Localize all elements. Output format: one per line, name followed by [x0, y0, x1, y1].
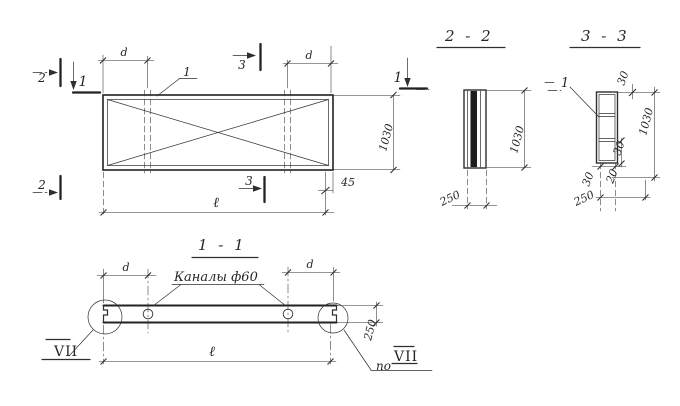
cut-label-2-bottom: 2 [37, 178, 46, 192]
engineering-drawing: 2 2 3 3 1 1 1 d d 1030 ℓ 45 2 - 2 1030 2… [0, 0, 680, 406]
channels-label: Каналы ф60 [173, 270, 258, 285]
section-2-2-view: 2 - 2 1030 250 [416, 27, 561, 209]
section-3-3-dim-width: 250 [571, 188, 596, 209]
detail-right-label: VII [393, 349, 418, 365]
cut-label-1-left: 1 [79, 74, 88, 90]
section-3-3-dim-rung: 30 [611, 139, 628, 157]
section-3-3-dim-bottom-right: 20 [603, 167, 620, 186]
detail-right-prefix: по [376, 359, 391, 373]
section-3-3-title: 3 - 3 [581, 27, 630, 45]
section-1-1-dim-length: ℓ [209, 344, 215, 360]
cut-2-sight-lines [33, 73, 52, 193]
plan-callout-leader [157, 79, 197, 97]
cut-label-1-right: 1 [394, 70, 403, 86]
section-1-1-dim-thickness: 250 [361, 318, 379, 343]
plan-callout-label: 1 [183, 65, 191, 79]
section-1-1-dim-d-left: d [122, 261, 129, 274]
cut-label-2-top: 2 [37, 71, 46, 85]
plan-view: 2 2 3 3 1 1 1 d d 1030 ℓ 45 [33, 44, 427, 216]
drawing-canvas: 2 2 3 3 1 1 1 d d 1030 ℓ 45 2 - 2 1030 2… [0, 0, 680, 406]
plan-diagonals [108, 100, 329, 166]
section-1-1-dim-d-right: d [306, 258, 313, 271]
plan-dimension-lines [98, 46, 400, 215]
plan-channel-centerlines [145, 90, 291, 173]
detail-left-label: VII [53, 344, 78, 360]
detail-circle-right [318, 303, 348, 333]
section-3-3-callout-leader [570, 87, 599, 117]
cut-1-3-sight-lines [74, 56, 408, 189]
section-3-3-view: 3 - 3 1 30 1030 30 30 20 250 [545, 27, 660, 211]
plan-dim-45: 45 [340, 176, 355, 189]
section-3-3-callout-label: 1 [561, 76, 569, 91]
section-1-1-bar-faces [104, 306, 337, 323]
section-2-2-dim-height: 1030 [507, 124, 527, 154]
section-2-2-dim-width: 250 [437, 188, 462, 209]
plan-dim-height: 1030 [376, 122, 396, 152]
section-2-2-core-band [471, 91, 478, 167]
section-3-3-dim-top: 30 [615, 69, 632, 87]
section-3-3-dim-height: 1030 [636, 106, 656, 136]
section-1-1-title: 1 - 1 [198, 236, 247, 254]
section-2-2-title: 2 - 2 [444, 27, 494, 45]
plan-dim-d-left: d [120, 46, 127, 59]
plan-dim-length: ℓ [213, 195, 219, 211]
section-1-1-bar-ends [104, 306, 337, 323]
cut-label-3-bottom: 3 [245, 174, 253, 188]
channels-label-leaders [153, 285, 286, 307]
section-3-3-dimension-lines [592, 84, 660, 200]
plan-dim-d-right: d [305, 49, 312, 62]
section-1-1-view: 1 - 1 Каналы ф60 VII по VII d d 250 ℓ [42, 236, 432, 373]
section-3-3-dim-bottom-left: 30 [580, 170, 597, 188]
section-3-3-ticks [598, 89, 658, 201]
cut-label-3-top: 3 [238, 58, 246, 72]
section-3-3-rungs [599, 114, 615, 142]
